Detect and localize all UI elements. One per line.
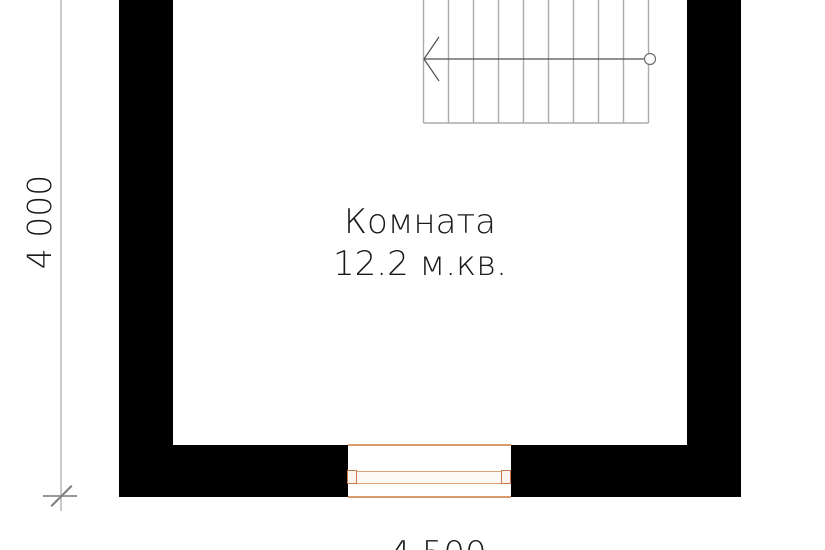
room-name: Комната [310,202,530,242]
dimension-line-vertical [60,0,62,511]
dimension-label-vertical: 4 000 [20,142,60,302]
window-inner-wall-line [348,444,511,446]
window-outer-wall-line [348,496,511,498]
room-label: Комната 12.2 м.кв. [310,202,530,286]
window-glazing [357,471,502,484]
wall-bottom-left-segment [119,445,348,497]
wall-bottom-right-segment [511,445,741,497]
room-area: 12.2 м.кв. [310,242,530,286]
wall-left [119,0,173,497]
window-jamb-left [347,470,357,484]
stair-treads [424,0,649,123]
window-jamb-right [501,470,511,484]
staircase [422,0,658,126]
wall-right [687,0,741,497]
floor-plan-canvas: 4 000 Комната 12.2 м.кв. [0,0,825,550]
stair-direction-arrow-icon [424,37,656,81]
stair-start-circle-icon [645,54,656,65]
dimension-label-horizontal: 4 500 [338,534,538,550]
